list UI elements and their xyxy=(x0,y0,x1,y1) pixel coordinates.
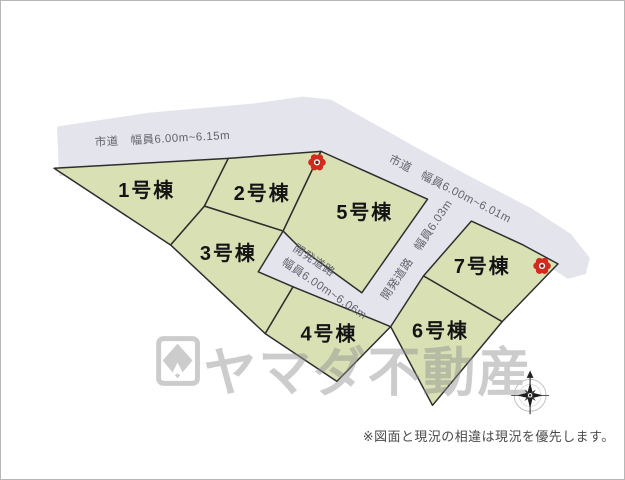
plot-5-label: 5号棟 xyxy=(336,200,393,224)
plot-2-label: 2号棟 xyxy=(234,181,291,205)
plot-4-label: 4号棟 xyxy=(301,322,358,346)
plot-map-page: ヤマダ不動産 1号棟 2号棟 3号棟 4号棟 5号棟 6号棟 7号棟 市道 幅員… xyxy=(0,0,625,480)
watermark-logo-icon xyxy=(159,339,198,384)
plot-7-label: 7号棟 xyxy=(454,254,511,278)
disclaimer-text: ※図面と現況の相違は現況を優先します。 xyxy=(363,429,615,444)
plot-6-label: 6号棟 xyxy=(412,319,469,343)
watermark-text: ヤマダ不動産 xyxy=(203,343,532,402)
site-plan-map: ヤマダ不動産 1号棟 2号棟 3号棟 4号棟 5号棟 6号棟 7号棟 市道 幅員… xyxy=(1,1,624,479)
plot-1-label: 1号棟 xyxy=(118,178,175,202)
plot-3-label: 3号棟 xyxy=(200,241,257,265)
